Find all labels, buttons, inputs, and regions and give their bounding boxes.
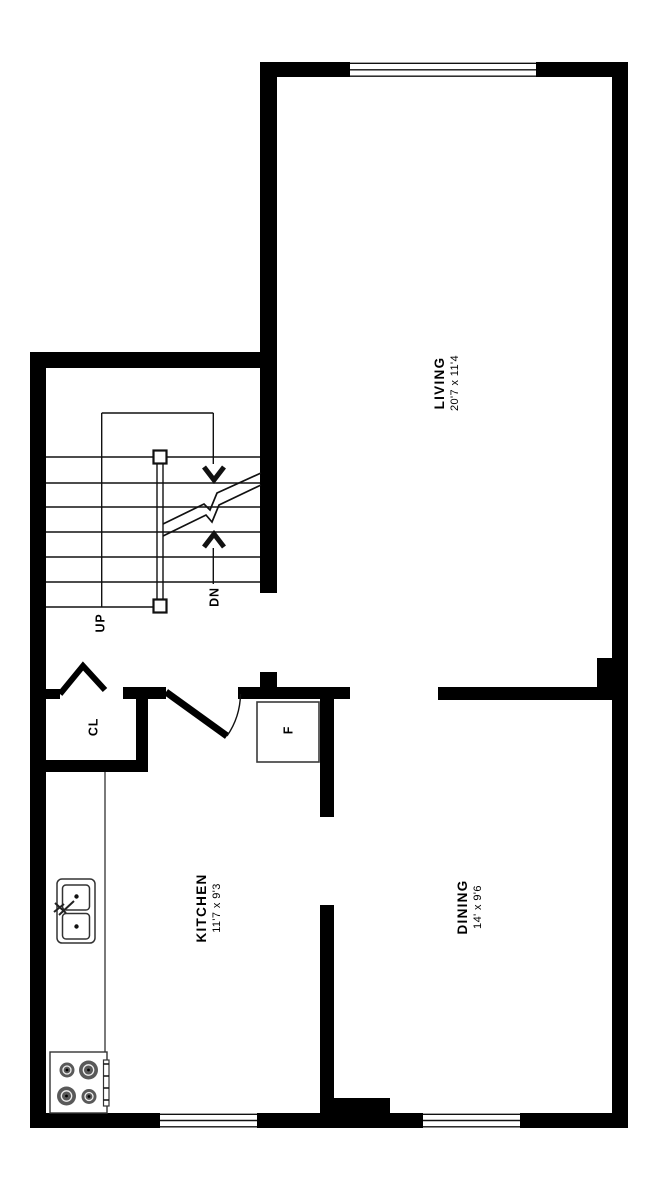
wall-stair-top xyxy=(30,352,272,368)
wall-closet-left-stub xyxy=(42,689,60,699)
newel-post-bottom xyxy=(154,600,167,613)
wall-kitchen-top xyxy=(238,687,350,699)
room-dims-kitchen: 11'7 x 9'3 xyxy=(211,873,224,942)
stove-burner-bottom-left xyxy=(57,1087,76,1106)
stove xyxy=(50,1052,109,1113)
window-dining xyxy=(423,1113,520,1128)
arrow-up-icon xyxy=(204,534,224,547)
sink-drain-bottom xyxy=(74,924,78,928)
wall-living-left-stub xyxy=(260,672,277,689)
sink-drain-top xyxy=(74,894,78,898)
wall-left xyxy=(30,352,46,1128)
wall-living-dining xyxy=(438,687,612,700)
floor-plan: LIVING 20'7 x 11'4 DINING 14' x 9'6 KITC… xyxy=(0,0,672,1196)
kitchen-door-leaf xyxy=(166,692,227,736)
wall-column-bump xyxy=(597,658,612,689)
wall-kitchen-dining-lower xyxy=(320,905,334,1100)
room-name-kitchen: KITCHEN xyxy=(194,873,210,942)
floor-plan-drawing xyxy=(0,0,672,1196)
kitchen-door-swing-arc xyxy=(227,694,241,736)
newel-post-top xyxy=(154,451,167,464)
stove-burner-top-right xyxy=(79,1061,98,1080)
wall-right xyxy=(612,62,628,1128)
wall-hall-left xyxy=(123,687,166,699)
stove-burner-top-left xyxy=(60,1063,75,1078)
room-dims-living: 20'7 x 11'4 xyxy=(449,355,462,411)
room-name-dining: DINING xyxy=(455,879,471,934)
stove-knob-strip xyxy=(104,1060,110,1106)
room-label-living: LIVING 20'7 x 11'4 xyxy=(432,355,462,411)
window-top xyxy=(350,62,536,77)
stairs xyxy=(46,413,261,613)
fridge-label: F xyxy=(282,726,297,734)
room-name-living: LIVING xyxy=(432,355,448,411)
kitchen-sink xyxy=(54,879,95,943)
window-kitchen xyxy=(160,1113,257,1128)
wall-kitchen-dining-base xyxy=(320,1098,390,1117)
room-label-kitchen: KITCHEN 11'7 x 9'3 xyxy=(194,873,224,942)
arrow-down-icon xyxy=(204,467,224,480)
closet-bifold-door xyxy=(60,666,105,694)
stair-break-line xyxy=(163,485,261,536)
stairs-down-label: DN xyxy=(208,587,223,607)
stove-burner-bottom-right xyxy=(82,1089,97,1104)
wall-living-left xyxy=(260,62,277,593)
wall-closet-bottom xyxy=(42,760,148,772)
stairs-up-label: UP xyxy=(94,614,109,633)
closet-label: CL xyxy=(87,718,102,736)
wall-kitchen-dining-upper xyxy=(320,698,334,817)
room-label-dining: DINING 14' x 9'6 xyxy=(455,879,485,934)
stair-treads xyxy=(46,457,260,607)
room-dims-dining: 14' x 9'6 xyxy=(472,879,485,934)
walls xyxy=(30,62,628,1128)
